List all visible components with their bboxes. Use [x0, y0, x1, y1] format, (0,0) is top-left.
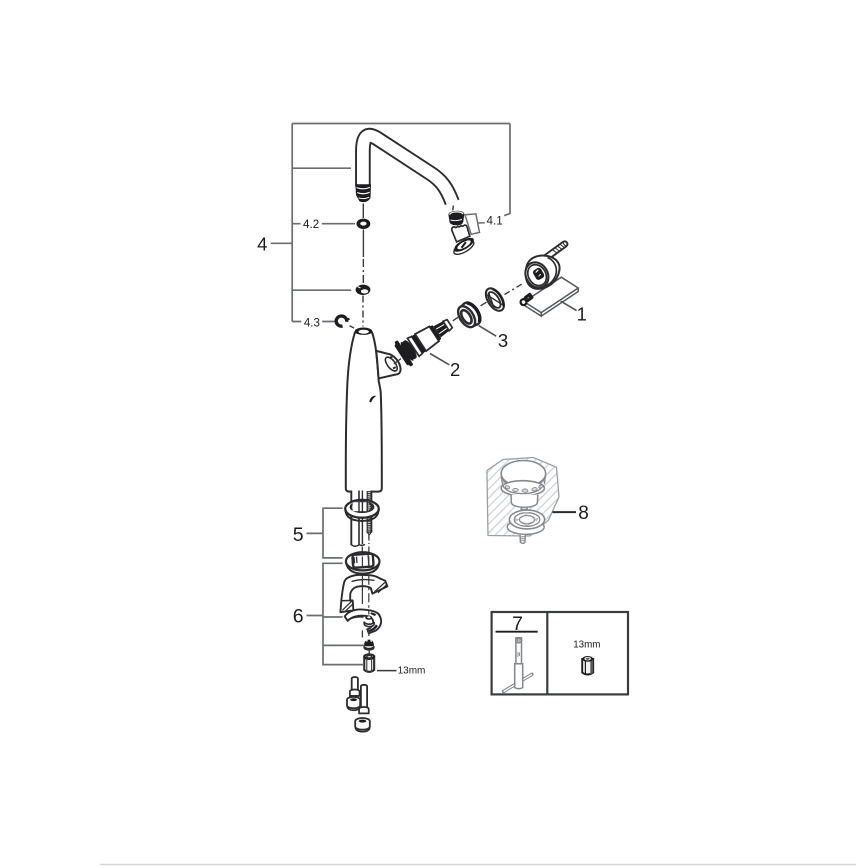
svg-text:8: 8	[578, 503, 589, 524]
svg-text:4.2: 4.2	[303, 218, 319, 231]
svg-text:6: 6	[293, 606, 304, 628]
svg-text:5: 5	[293, 524, 304, 546]
svg-text:3: 3	[498, 330, 508, 351]
svg-text:13mm: 13mm	[398, 665, 426, 676]
svg-text:13mm: 13mm	[573, 640, 600, 651]
svg-text:4.3: 4.3	[304, 316, 320, 329]
svg-text:4: 4	[257, 233, 267, 254]
svg-text:1: 1	[577, 303, 587, 324]
svg-text:2: 2	[450, 359, 460, 380]
svg-text:4.1: 4.1	[487, 214, 503, 227]
